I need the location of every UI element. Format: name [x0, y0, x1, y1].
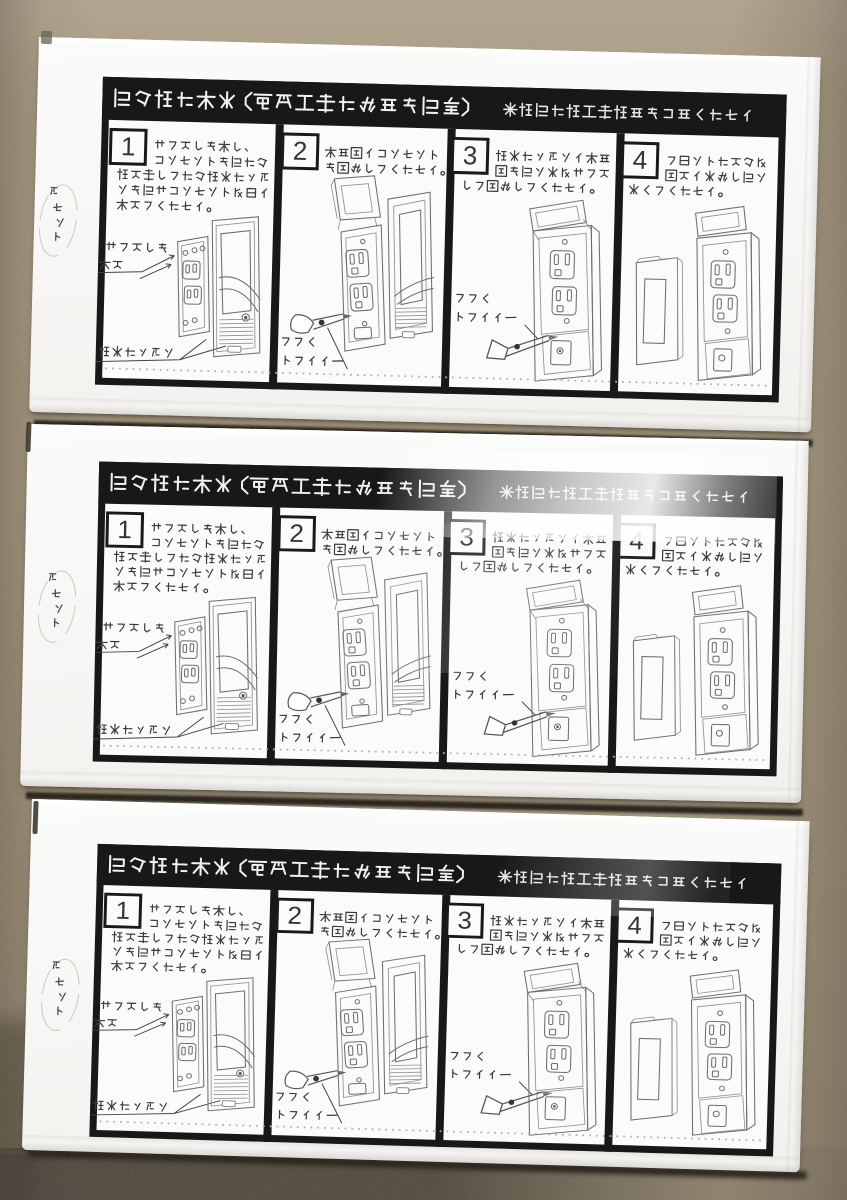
svg-text:1: 1	[121, 131, 136, 161]
svg-text:3: 3	[457, 907, 472, 935]
svg-text:3: 3	[459, 524, 474, 552]
svg-text:4: 4	[627, 912, 642, 940]
svg-text:4: 4	[629, 527, 644, 555]
svg-text:2: 2	[289, 520, 304, 548]
svg-text:4: 4	[632, 145, 647, 175]
svg-text:2: 2	[292, 136, 307, 166]
svg-text:2: 2	[287, 902, 302, 930]
svg-text:1: 1	[117, 516, 132, 544]
svg-text:3: 3	[462, 140, 477, 170]
svg-text:1: 1	[115, 897, 130, 925]
